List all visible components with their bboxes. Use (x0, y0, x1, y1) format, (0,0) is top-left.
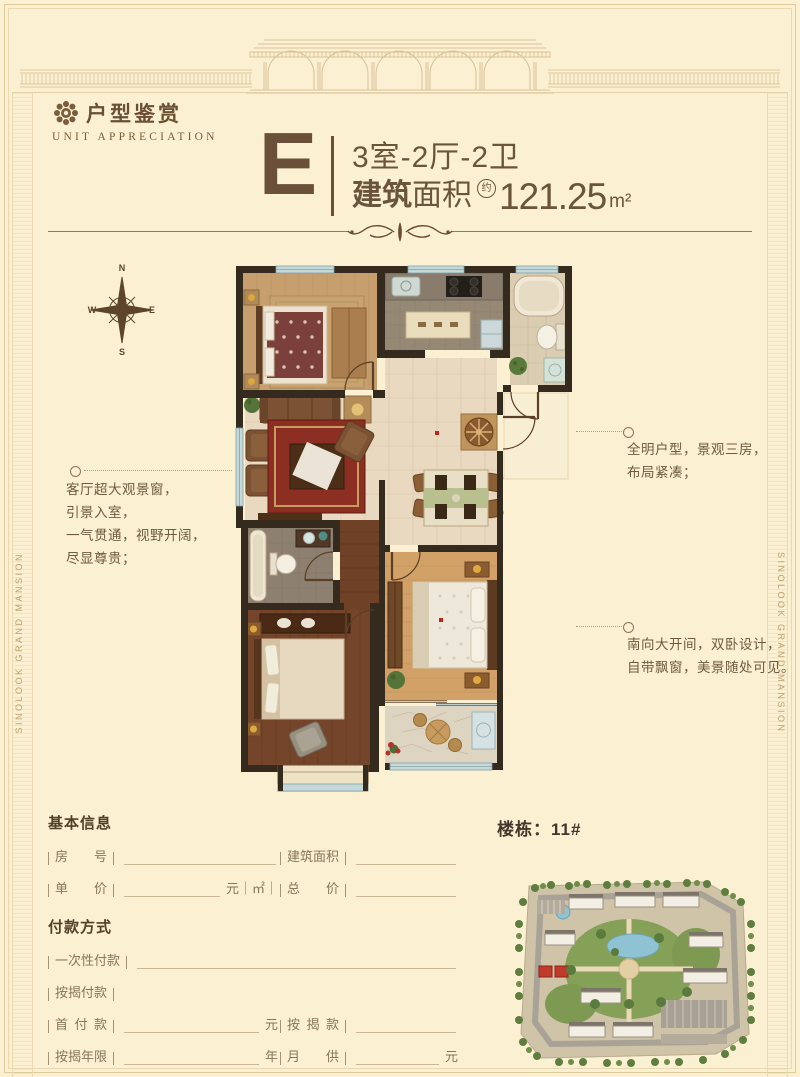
note-line: 全明户型，景观三房， (627, 438, 767, 461)
room-no-label: 房号 (55, 846, 133, 865)
brand-title-cn: 户型鉴赏 (86, 98, 182, 128)
mortgage-pay-label: 按揭付款 (55, 982, 107, 1001)
arcade-ornament (12, 34, 788, 94)
monthly-pay-line (356, 1050, 439, 1065)
compass-s-label: S (119, 347, 125, 356)
form-row-mortgage: 按揭付款 (48, 985, 460, 1001)
payment-title: 付款方式 (48, 916, 460, 937)
note-leader-left (84, 470, 232, 471)
unit-price-line (124, 882, 220, 897)
unit-area-row: 建筑 面积 约 121.25 m² (352, 170, 631, 214)
unit-letter: E (256, 118, 320, 210)
room-no-line (124, 850, 276, 865)
mortgage-years-line (124, 1050, 259, 1065)
title-divider-bar (331, 136, 334, 216)
area-unit: m² (609, 191, 631, 213)
compass-n-label: N (119, 263, 126, 273)
note-marker-right-top (623, 427, 634, 438)
note-right-top: 全明户型，景观三房， 布局紧凑； (627, 438, 767, 484)
total-price-label: 总价 (287, 878, 365, 897)
note-marker-right-bottom (623, 622, 634, 633)
form-row-down-loan: 首付款 元 按揭款 (48, 1017, 460, 1033)
note-line: 引景入室， (66, 501, 206, 524)
rosette-icon (52, 99, 80, 127)
form-row-prices: 单价 元｜㎡｜ 总价 (48, 881, 460, 897)
compass-rose-icon: N S W E (86, 260, 158, 356)
build-area-line (356, 850, 456, 865)
area-value: 121.25 (499, 180, 606, 214)
flyer-page: SINOLOOK GRAND MANSION SINOLOOK GRAND MA… (0, 0, 800, 1077)
area-label-light: 面积 (412, 170, 472, 214)
divider-line-right (452, 231, 752, 232)
note-left: 客厅超大观景窗， 引景入室， 一气贯通，视野开阔， 尽显尊贵； (66, 478, 206, 570)
building-label: 楼栋：11# (497, 815, 581, 840)
years-suffix: 年 (265, 1046, 278, 1065)
one-time-label: 一次性付款 (55, 950, 120, 969)
floor-plan (232, 262, 574, 794)
mortgage-amount-label: 按揭款 (287, 1014, 346, 1033)
note-line: 客厅超大观景窗， (66, 478, 206, 501)
site-plan-map (511, 874, 757, 1070)
entry-medallion (461, 414, 497, 450)
form-row-years-monthly: 按揭年限 年 月供 元 (48, 1049, 460, 1065)
form-row-roomno-area: 房号 建筑面积 (48, 849, 460, 865)
note-right-bottom: 南向大开间，双卧设计， 自带飘窗，美景随处可见。 (627, 633, 795, 679)
note-leader-right-bottom (576, 626, 622, 627)
mortgage-years-label: 按揭年限 (55, 1046, 107, 1065)
note-line: 一气贯通，视野开阔， (66, 524, 206, 547)
approx-badge: 约 (477, 179, 496, 198)
note-line: 南向大开间，双卧设计， (627, 633, 795, 656)
one-time-line (137, 954, 456, 969)
bay-window (278, 765, 368, 791)
balcony-slider (385, 700, 497, 706)
note-line: 尽显尊贵； (66, 547, 206, 570)
info-form: 基本信息 房号 建筑面积 单价 元｜㎡｜ 总价 付款方式 (48, 812, 460, 1077)
divider-line-left (48, 231, 348, 232)
total-price-line (356, 882, 456, 897)
brand-logo: 户型鉴赏 UNIT APPRECIATION (52, 98, 218, 143)
build-area-label: 建筑面积 (287, 846, 339, 865)
form-row-onetime: 一次性付款 (48, 953, 460, 969)
unit-price-label: 单价 (55, 878, 133, 897)
down-payment-suffix: 元 (265, 1014, 278, 1033)
side-text-left: SINOLOOK GRAND MANSION (14, 552, 24, 734)
note-line: 自带飘窗，美景随处可见。 (627, 656, 795, 679)
monthly-suffix: 元 (445, 1046, 458, 1065)
mortgage-amount-line (356, 1018, 456, 1033)
brand-title-en: UNIT APPRECIATION (52, 131, 218, 143)
down-payment-label: 首付款 (55, 1014, 114, 1033)
compass-w-label: W (88, 305, 97, 315)
monthly-pay-label: 月供 (287, 1046, 365, 1065)
stairwell-area (504, 393, 568, 479)
note-leader-right-top (576, 431, 622, 432)
note-line: 布局紧凑； (627, 461, 767, 484)
basic-info-title: 基本信息 (48, 812, 460, 833)
compass-e-label: E (149, 305, 155, 315)
area-label-bold: 建筑 (352, 170, 412, 214)
down-payment-line (124, 1018, 259, 1033)
unit-price-suffix: 元｜㎡｜ (226, 878, 278, 897)
note-marker-left (70, 466, 81, 477)
divider-flourish-icon (346, 220, 454, 244)
